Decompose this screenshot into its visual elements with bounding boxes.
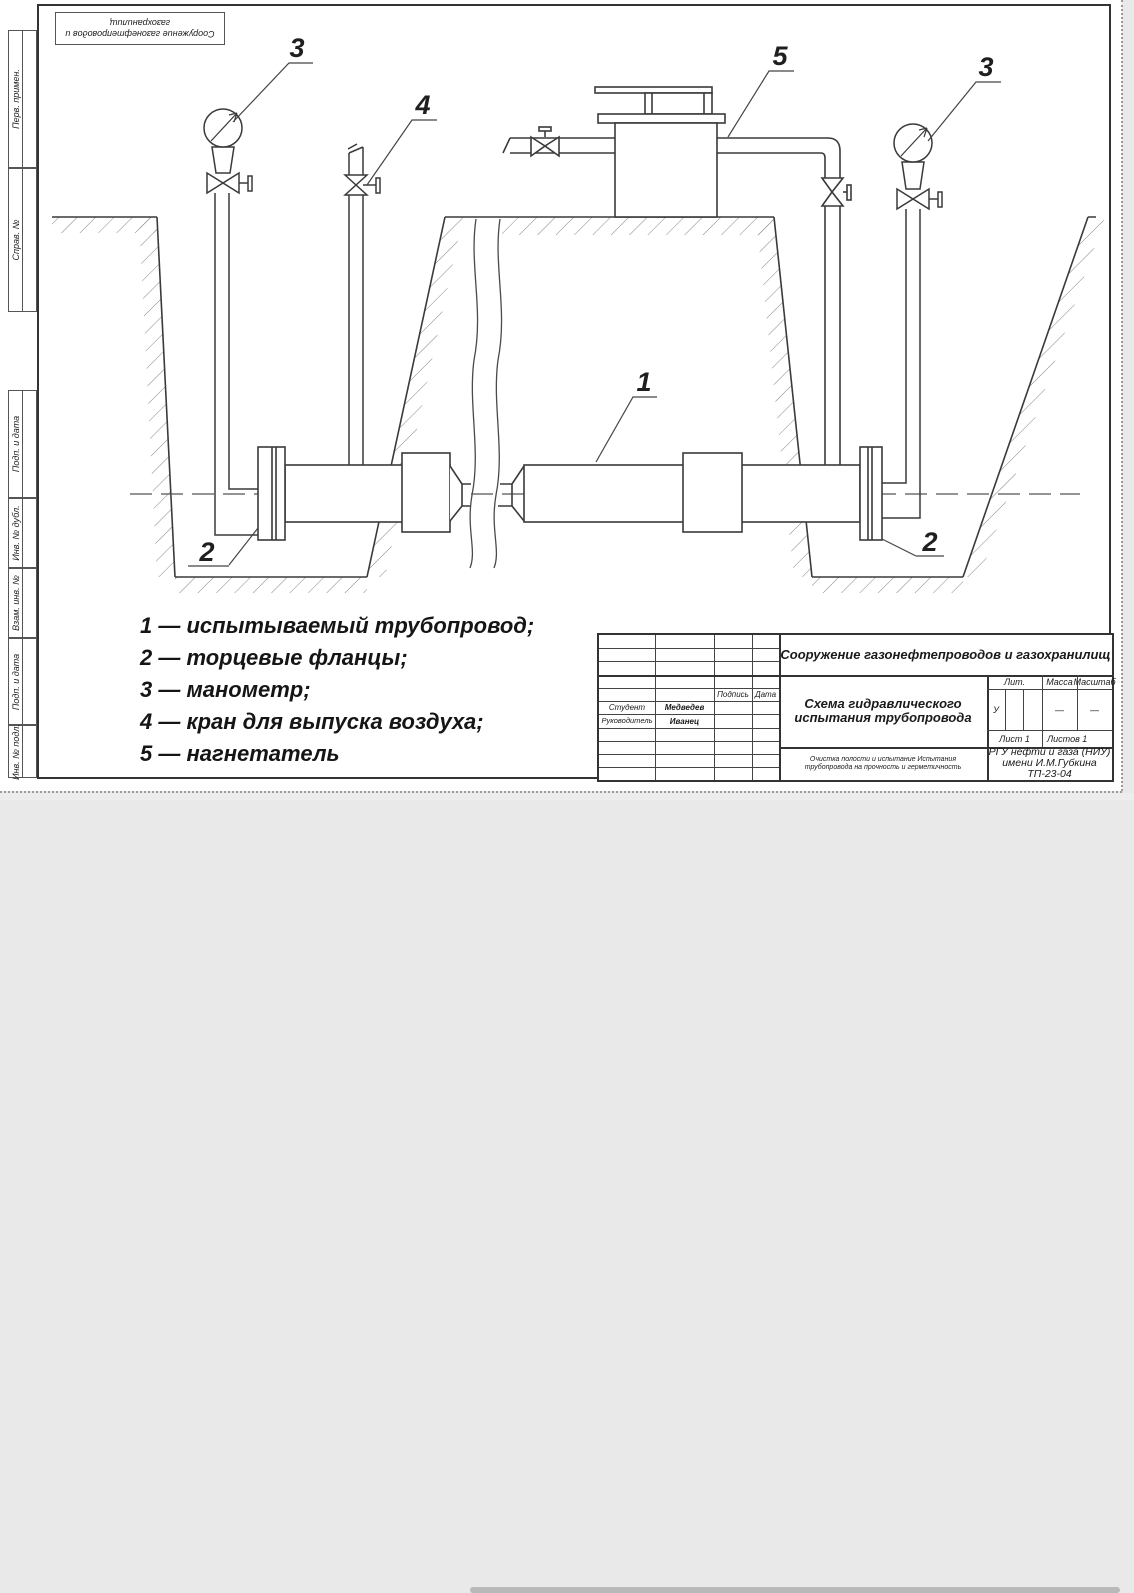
work-note-line1: Очистка полости и испытание Испытания: [810, 756, 956, 764]
top-left-stamp: Сооружение газонефтепроводов и газохрани…: [55, 12, 225, 45]
margin-label: Перв. примен.: [11, 69, 21, 129]
legend-item: 4 — кран для выпуска воздуха;: [140, 706, 580, 738]
mass-value: —: [1042, 689, 1077, 730]
role-supervisor: Руководитель: [599, 714, 655, 728]
margin-block-podp-data-2: Подп. и дата: [8, 638, 37, 725]
lit-header: Лит.: [987, 675, 1042, 689]
margin-label: Справ. №: [11, 220, 21, 261]
horizontal-scrollbar-track[interactable]: [0, 793, 1134, 800]
legend: 1 — испытываемый трубопровод; 2 — торцев…: [140, 610, 580, 770]
margin-label: Подп. и дата: [11, 653, 21, 709]
end-flange-right: [860, 447, 882, 540]
end-flange-left: [258, 447, 285, 540]
margin-block-inv-podl: Инв. № подл.: [8, 725, 37, 778]
legend-item: 3 — манометр;: [140, 674, 580, 706]
callout-flange-left: 2: [198, 537, 214, 567]
role-student: Студент: [599, 701, 655, 714]
date-header: Дата: [752, 688, 779, 701]
sheet-number: Лист 1: [987, 730, 1042, 747]
title-block: Подпись Дата Студент Медведев Руководите…: [597, 633, 1114, 782]
callout-compressor: 5: [772, 41, 788, 71]
scale-header: Масштаб: [1077, 675, 1112, 689]
horizontal-scrollbar-thumb[interactable]: [470, 1587, 1120, 1593]
group-code: ТП-23-04: [1027, 769, 1071, 780]
margin-block-sprav-no: Справ. №: [8, 168, 37, 312]
mass-header: Масса: [1042, 675, 1077, 689]
lit-value: У: [987, 689, 1005, 730]
manometer-left: [204, 109, 258, 535]
callout-air-valve: 4: [414, 90, 430, 120]
callout-flange-right: 2: [921, 527, 937, 557]
stamp-text: Сооружение газонефтепроводов и газохрани…: [56, 13, 224, 44]
margin-label: Инв. № подл.: [11, 724, 21, 780]
sheets-total: Листов 1: [1042, 730, 1112, 747]
scale-value: —: [1077, 689, 1112, 730]
callout-gauge-left: 3: [289, 33, 304, 63]
break-lines: [470, 219, 502, 568]
legend-item: 5 — нагнетатель: [140, 738, 580, 770]
margin-label: Подп. и дата: [11, 416, 21, 472]
name-student: Медведев: [655, 701, 714, 714]
name-supervisor: Иванец: [655, 714, 714, 728]
compressor-unit: [503, 87, 851, 465]
margin-label: Взам. инв. №: [11, 575, 21, 631]
margin-block-perv-primen: Перв. примен.: [8, 30, 37, 168]
callout-gauge-right: 3: [978, 52, 993, 82]
drawing-sheet: 1 2 2 3 4 5 3 Перв. примен. Справ. № Под…: [0, 0, 1122, 791]
drawing-title-line2: испытания трубопровода: [794, 711, 971, 725]
work-note-line2: трубопровода на прочность и герметичност…: [805, 764, 962, 772]
margin-block-inv-dubl: Инв. № дубл.: [8, 498, 37, 568]
page-edge-right: [1121, 0, 1123, 791]
margin-block-podp-data-1: Подп. и дата: [8, 390, 37, 498]
margin-block-vzam-inv: Взам. инв. №: [8, 568, 37, 638]
trench-outline: [52, 217, 1096, 577]
air-valve-column: [345, 144, 380, 465]
legend-item: 2 — торцевые фланцы;: [140, 642, 580, 674]
manometer-right: [882, 124, 942, 518]
signature-header: Подпись: [714, 688, 752, 701]
course-title: Сооружение газонефтепроводов и газохрани…: [779, 635, 1112, 675]
drawing-title-line1: Схема гидравлического: [804, 697, 961, 711]
legend-item: 1 — испытываемый трубопровод;: [140, 610, 580, 642]
callout-pipe: 1: [636, 367, 651, 397]
margin-label: Инв. № дубл.: [11, 505, 21, 560]
